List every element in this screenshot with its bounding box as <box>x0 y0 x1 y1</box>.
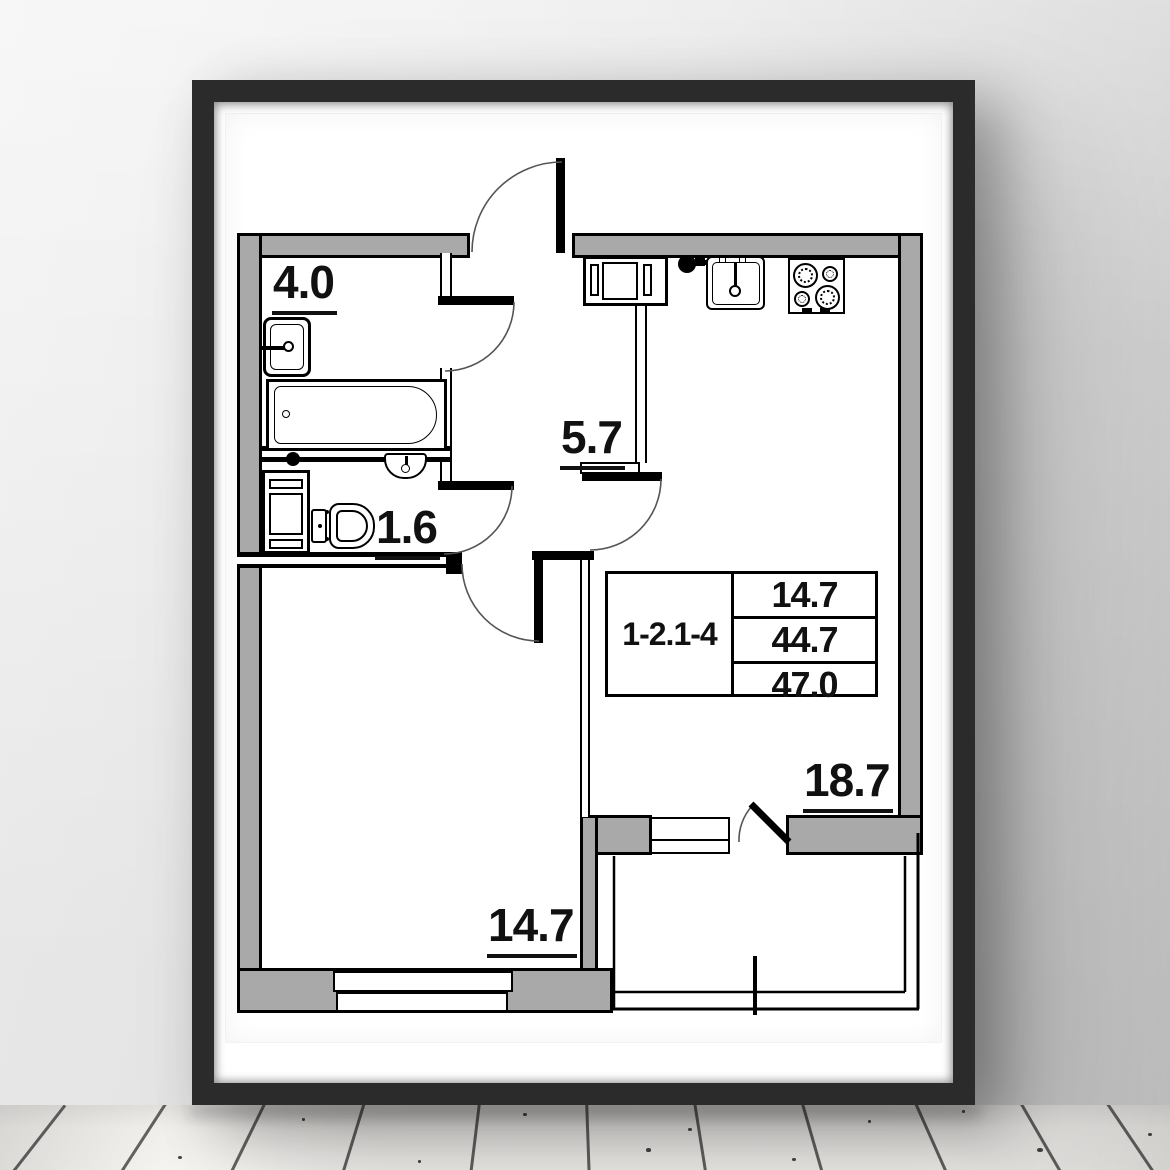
living-door-arc <box>590 479 661 550</box>
entry-door-arc <box>472 162 562 252</box>
unit-area-row: 44.7 <box>734 619 875 664</box>
unit-info-table: 1-2.1-4 14.7 44.7 47.0 <box>605 571 878 697</box>
plan-lines-overlay <box>0 0 1170 1170</box>
room-area-label-bathroom: 4.0 <box>272 259 337 315</box>
unit-area-values: 14.7 44.7 47.0 <box>734 574 875 694</box>
unit-id-cell: 1-2.1-4 <box>608 574 734 694</box>
room-area-label-hallway: 5.7 <box>560 414 625 470</box>
room-area-label-room: 14.7 <box>487 902 577 958</box>
room-area-label-toilet: 1.6 <box>375 504 440 560</box>
balcony-door-arc <box>739 806 752 842</box>
bathroom-door-arc <box>445 302 514 371</box>
floor-plan: 4.0 1.6 5.7 18.7 14.7 1-2.1-4 14.7 44.7 … <box>0 0 1170 1170</box>
unit-area-row: 47.0 <box>734 664 875 706</box>
room-door-arc <box>462 564 539 641</box>
unit-area-row: 14.7 <box>734 574 875 619</box>
balcony-door-leaf <box>751 804 789 842</box>
room-area-label-kitchen-living: 18.7 <box>803 757 893 813</box>
scene: 4.0 1.6 5.7 18.7 14.7 1-2.1-4 14.7 44.7 … <box>0 0 1170 1170</box>
toilet-door-arc <box>444 486 512 554</box>
